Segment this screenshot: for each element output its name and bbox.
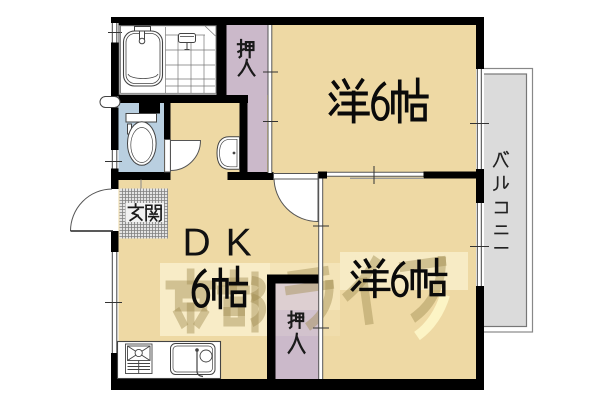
svg-text:DK: DK	[183, 222, 267, 265]
